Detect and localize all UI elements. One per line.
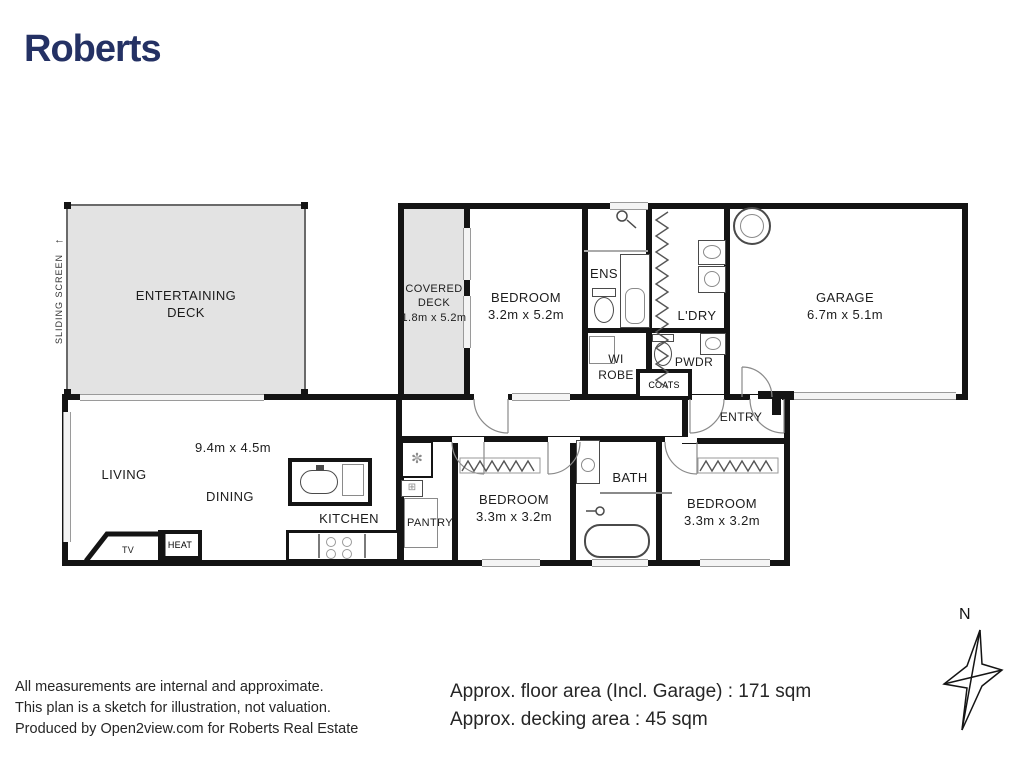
laundry-sink-bowl	[703, 245, 721, 259]
disclaimer-text: All measurements are internal and approx…	[15, 677, 358, 740]
area-summary-text: Approx. floor area (Incl. Garage) : 171 …	[450, 678, 811, 734]
disclaimer-line: Produced by Open2view.com for Roberts Re…	[15, 719, 358, 740]
ens-label: ENS	[590, 266, 618, 283]
window	[512, 393, 570, 401]
deck-corner	[301, 202, 308, 209]
dining-label: DINING	[206, 489, 254, 506]
shower-base	[625, 288, 645, 324]
garage-door	[794, 392, 956, 400]
bench-divider	[364, 534, 366, 558]
coats-closet: COATS	[636, 369, 692, 400]
toilet-icon	[652, 334, 674, 342]
tv-label: TV	[122, 545, 134, 557]
living-dims-label: 9.4m x 4.5m	[195, 440, 271, 457]
bench-divider	[318, 534, 320, 558]
wall-pantry-bedroom2	[452, 442, 458, 560]
toilet-icon	[654, 342, 672, 366]
deck-corner	[301, 389, 308, 396]
tap-icon	[316, 465, 324, 470]
bathtub-icon	[584, 524, 650, 558]
deck-corner	[64, 202, 71, 209]
floor-area-line: Approx. floor area (Incl. Garage) : 171 …	[450, 678, 811, 706]
bedroom-master-label: BEDROOM 3.2m x 5.2m	[488, 290, 564, 324]
vanity-bowl	[581, 458, 595, 472]
pwdr-label: PWDR	[675, 355, 713, 371]
kitchen-label: KITCHEN	[319, 511, 379, 528]
towel-rail	[600, 492, 672, 494]
door-opening	[474, 394, 508, 401]
window	[482, 559, 540, 567]
compass-north-label: N	[959, 606, 971, 624]
window	[610, 202, 648, 210]
disclaimer-line: All measurements are internal and approx…	[15, 677, 358, 698]
shower-screen	[584, 250, 648, 252]
door-arc	[474, 399, 508, 433]
door-opening	[665, 437, 697, 443]
door-opening	[452, 437, 484, 443]
floor-plan: ✼ ⊞ HEAT COATS	[0, 0, 1024, 768]
deck-corner	[64, 389, 71, 396]
entertaining-deck-label: ENTERTAINING DECK	[136, 288, 236, 322]
ldry-label: L'DRY	[678, 308, 717, 325]
sliding-screen-arrow: ←	[54, 234, 65, 246]
sliding-door	[80, 394, 264, 401]
covered-deck-label: COVERED DECK 1.8m x 5.2m	[402, 282, 467, 325]
wi-robe-label: WI ROBE	[598, 352, 634, 383]
bedroom3-label: BEDROOM 3.3m x 3.2m	[684, 496, 760, 530]
garage-label: GARAGE 6.7m x 5.1m	[807, 290, 883, 324]
cooktop-burner-icon	[342, 537, 352, 547]
window	[700, 559, 770, 567]
door-opening	[692, 395, 724, 401]
window	[463, 228, 471, 280]
washing-machine-drum	[704, 271, 720, 287]
bedroom2-label: BEDROOM 3.3m x 3.2m	[476, 492, 552, 526]
wall-bath-bedroom3	[656, 442, 662, 560]
appliance-grid-icon: ⊞	[401, 483, 423, 493]
decking-area-line: Approx. decking area : 45 sqm	[450, 706, 811, 734]
sink-bowl	[705, 337, 721, 350]
compass-star	[944, 630, 1002, 730]
island-unit	[342, 464, 364, 496]
disclaimer-line: This plan is a sketch for illustration, …	[15, 698, 358, 719]
wall-ens-wirobe	[582, 328, 652, 333]
entry-door-stem	[772, 397, 781, 415]
window	[592, 559, 648, 567]
toilet-icon	[592, 288, 616, 297]
cooktop-burner-icon	[342, 549, 352, 559]
pantry-label: PANTRY	[407, 516, 453, 530]
coats-label: COATS	[648, 380, 679, 390]
island-sink-icon	[300, 470, 338, 494]
cooktop-burner-icon	[326, 549, 336, 559]
heat-label: HEAT	[168, 540, 192, 550]
heater-box: HEAT	[158, 530, 202, 560]
fridge-snowflake-icon: ✼	[404, 451, 430, 465]
hot-water-cylinder-inner	[740, 214, 764, 238]
wall-bedroom-ens	[582, 209, 588, 394]
window	[63, 412, 71, 542]
living-label: LIVING	[101, 467, 146, 484]
toilet-icon	[594, 297, 614, 323]
wall-ldry-garage	[724, 209, 730, 394]
bath-label: BATH	[612, 470, 647, 487]
cooktop-burner-icon	[326, 537, 336, 547]
sliding-screen-label: SLIDING SCREEN	[54, 234, 64, 364]
entry-label: ENTRY	[720, 410, 762, 426]
